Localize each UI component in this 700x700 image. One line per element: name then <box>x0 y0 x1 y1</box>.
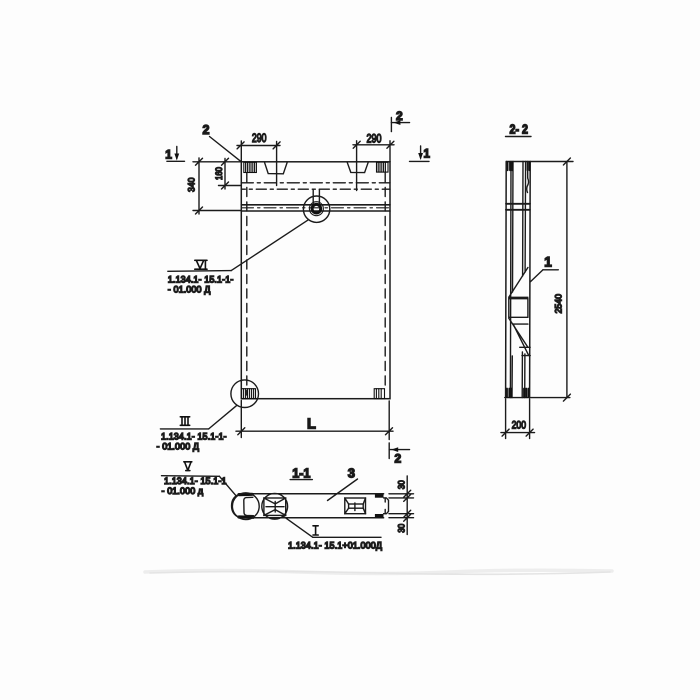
svg-text:1.134.1- 15.1-1-: 1.134.1- 15.1-1- <box>161 432 227 442</box>
svg-text:2- 2: 2- 2 <box>510 122 529 136</box>
svg-text:290: 290 <box>367 132 382 146</box>
svg-text:1.134.1- 15.1-1: 1.134.1- 15.1-1 <box>164 476 227 486</box>
svg-text:3: 3 <box>348 466 355 481</box>
svg-text:30: 30 <box>396 480 407 489</box>
svg-text:2540: 2540 <box>553 294 564 314</box>
svg-text:1: 1 <box>544 255 552 270</box>
svg-text:- 01.000 д: - 01.000 д <box>162 486 204 496</box>
svg-text:1.134.1- 15.1-1-: 1.134.1- 15.1-1- <box>168 275 234 285</box>
svg-text:340: 340 <box>186 178 197 193</box>
svg-text:2: 2 <box>395 452 402 466</box>
svg-text:290: 290 <box>252 131 267 145</box>
svg-text:2: 2 <box>396 109 403 123</box>
svg-text:1: 1 <box>424 149 431 161</box>
svg-text:2: 2 <box>203 123 210 137</box>
svg-text:- 01.000 Д: - 01.000 Д <box>157 442 200 452</box>
svg-text:1-1: 1-1 <box>292 466 310 481</box>
svg-text:- 01.000 Д: - 01.000 Д <box>168 285 211 295</box>
svg-text:160: 160 <box>214 167 225 180</box>
svg-text:1: 1 <box>165 147 172 161</box>
svg-text:L: L <box>307 417 316 433</box>
svg-text:30: 30 <box>396 524 407 533</box>
svg-text:200: 200 <box>512 419 526 431</box>
svg-text:1.134.1- 15.1+01.000Д: 1.134.1- 15.1+01.000Д <box>288 541 382 551</box>
